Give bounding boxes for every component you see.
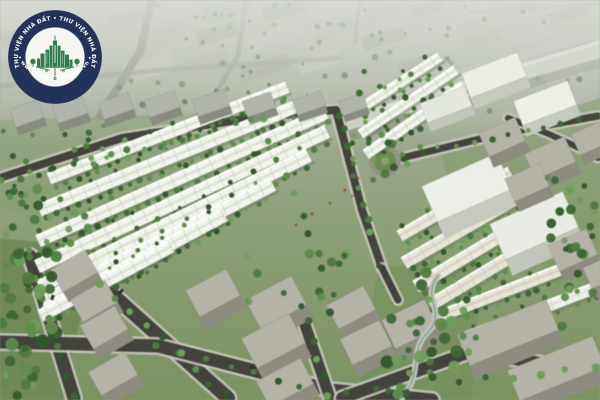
tree	[537, 371, 545, 379]
tree	[351, 161, 356, 166]
tree	[350, 156, 356, 162]
tree	[381, 355, 394, 368]
tree	[370, 177, 376, 183]
tree	[123, 146, 130, 153]
tree	[30, 132, 35, 137]
tree	[576, 117, 581, 122]
tree	[17, 176, 24, 183]
tree	[290, 190, 297, 197]
tree	[574, 289, 579, 294]
tree	[179, 137, 185, 143]
tree	[331, 292, 337, 298]
tree	[392, 354, 403, 365]
tree	[5, 356, 16, 367]
tree	[565, 285, 574, 294]
tree	[435, 144, 439, 148]
round-feature	[351, 195, 354, 198]
tree	[365, 216, 372, 223]
tree	[26, 254, 33, 261]
tree	[416, 279, 427, 290]
tree	[318, 265, 325, 272]
tree	[429, 373, 437, 381]
tree	[1, 129, 6, 134]
tree	[435, 318, 448, 331]
tree	[361, 69, 366, 74]
tree	[324, 392, 331, 399]
tree	[565, 186, 573, 194]
tree	[88, 155, 94, 161]
tree	[557, 322, 566, 331]
tree	[450, 345, 463, 358]
tree	[385, 388, 391, 394]
tree	[438, 306, 449, 317]
tree	[81, 213, 88, 220]
tree	[352, 133, 356, 137]
tree	[104, 155, 109, 160]
tree	[376, 263, 382, 269]
tree	[247, 298, 253, 304]
tree	[489, 136, 496, 143]
tree	[473, 335, 479, 341]
tree	[372, 246, 378, 252]
tree	[144, 322, 150, 328]
tree	[5, 292, 17, 304]
tree	[343, 389, 350, 396]
tree	[4, 262, 11, 269]
tree	[25, 322, 36, 333]
tree	[463, 296, 470, 303]
tree	[233, 120, 239, 126]
tree	[563, 246, 569, 252]
tree	[459, 333, 466, 340]
tree	[96, 280, 104, 288]
tree	[315, 250, 322, 257]
tree	[336, 260, 343, 267]
tree	[33, 200, 43, 210]
round-feature	[357, 177, 360, 180]
tree	[91, 161, 97, 167]
tree	[159, 333, 167, 341]
tree	[311, 338, 318, 345]
round-feature	[343, 188, 346, 191]
tree	[541, 126, 546, 131]
tree	[377, 84, 381, 88]
tree	[414, 350, 427, 363]
tree	[194, 134, 199, 139]
tree	[562, 237, 568, 243]
tree	[298, 303, 304, 309]
tree	[571, 242, 580, 251]
tree	[551, 176, 559, 184]
tree	[18, 361, 25, 368]
tree	[84, 223, 92, 231]
tree	[456, 379, 462, 385]
tree	[408, 71, 414, 77]
tree	[86, 130, 92, 136]
tree	[592, 363, 600, 372]
tree	[2, 380, 9, 387]
tree	[67, 239, 75, 247]
tree	[44, 239, 50, 245]
tree	[32, 184, 42, 194]
tree	[379, 132, 385, 138]
tree	[56, 353, 63, 360]
tree	[555, 207, 564, 216]
tree	[317, 293, 324, 300]
tree	[283, 172, 290, 179]
tree	[366, 229, 373, 236]
tree	[320, 372, 328, 380]
tree	[392, 389, 403, 400]
tree	[460, 307, 468, 315]
tree	[2, 372, 9, 379]
tree	[336, 112, 343, 119]
tree	[356, 185, 362, 191]
tree	[448, 361, 460, 373]
tree	[510, 375, 518, 383]
tree	[34, 292, 41, 299]
tree	[13, 391, 22, 400]
tree	[54, 332, 61, 339]
tree	[381, 169, 390, 178]
tree	[281, 290, 287, 296]
tree	[152, 342, 159, 349]
tree	[205, 381, 211, 387]
tree	[273, 157, 279, 163]
round-feature	[381, 157, 389, 165]
tree	[561, 293, 569, 301]
tree	[587, 223, 595, 231]
tree	[296, 384, 302, 390]
tree	[253, 269, 261, 277]
tree	[421, 150, 427, 156]
tree	[27, 169, 32, 174]
tree	[36, 173, 42, 179]
tree	[126, 308, 133, 315]
tree	[54, 343, 61, 350]
tree	[23, 305, 31, 313]
tree	[212, 126, 218, 132]
tree	[405, 347, 411, 353]
tree	[577, 197, 584, 204]
tree	[70, 209, 79, 218]
tree	[13, 249, 24, 260]
tree	[305, 317, 313, 325]
tree	[162, 141, 168, 147]
round-feature	[295, 224, 298, 227]
tree	[592, 210, 597, 215]
tree	[71, 147, 77, 153]
tree	[245, 254, 250, 259]
tree	[590, 201, 599, 210]
tree	[383, 85, 387, 89]
tree	[439, 333, 450, 344]
tree	[421, 267, 432, 278]
tree	[248, 116, 254, 122]
tree	[46, 213, 53, 220]
tree	[390, 163, 398, 171]
tree	[57, 196, 63, 202]
tree	[260, 115, 268, 123]
tree	[465, 348, 473, 356]
tree	[23, 158, 29, 164]
tree	[36, 334, 50, 348]
tree	[546, 233, 555, 242]
tree	[402, 94, 408, 100]
tree	[482, 374, 488, 380]
tree	[574, 270, 582, 278]
tree	[588, 288, 597, 297]
tree	[265, 138, 272, 145]
tree	[10, 153, 16, 159]
tree	[454, 297, 460, 303]
tree	[108, 151, 114, 157]
tree	[223, 390, 230, 397]
tree	[430, 338, 437, 345]
tree	[78, 230, 85, 237]
tree	[9, 223, 16, 230]
tree	[5, 338, 18, 351]
tree	[19, 194, 23, 198]
tree	[589, 233, 595, 239]
tree	[305, 249, 315, 259]
tree	[178, 349, 186, 357]
tree	[229, 364, 234, 369]
tree	[341, 253, 347, 259]
tree	[398, 87, 403, 92]
tree	[350, 140, 355, 145]
tree	[300, 213, 307, 220]
tree	[46, 271, 57, 282]
tree	[360, 202, 366, 208]
tree	[526, 128, 531, 133]
tree	[101, 124, 105, 128]
tree	[30, 215, 40, 225]
tree	[385, 139, 392, 146]
tree	[62, 132, 67, 137]
tree	[65, 226, 72, 233]
tree	[557, 121, 563, 127]
watermark-badge: THƯ VIỆN NHÀ ĐẤT • THƯ VIỆN NHÀ ĐẤT • ww…	[0, 2, 110, 112]
tree	[313, 356, 320, 363]
tree	[415, 316, 425, 326]
tree	[192, 366, 199, 373]
tree	[26, 247, 33, 254]
tree	[251, 369, 257, 375]
tree	[472, 140, 478, 146]
tree	[71, 161, 77, 167]
tree	[426, 358, 433, 365]
tree	[350, 173, 355, 178]
tree	[386, 314, 396, 324]
tree	[203, 355, 210, 362]
tree	[561, 366, 567, 372]
tree	[406, 320, 414, 328]
tree	[327, 257, 336, 266]
tree	[22, 272, 35, 285]
tree	[50, 165, 56, 171]
round-feature	[311, 213, 314, 216]
tree	[454, 144, 459, 149]
tree	[356, 90, 363, 97]
tree	[63, 373, 70, 380]
tree	[2, 231, 9, 238]
tree	[581, 183, 587, 189]
tree	[45, 284, 55, 294]
tree	[373, 386, 379, 392]
tree	[413, 329, 420, 336]
tree	[397, 77, 401, 81]
tree	[142, 147, 147, 152]
tree	[427, 347, 437, 357]
round-feature	[329, 202, 332, 205]
tree	[545, 175, 550, 180]
tree	[404, 161, 411, 168]
tree	[445, 316, 458, 329]
tree	[10, 188, 17, 195]
tree	[21, 380, 31, 390]
tree	[341, 125, 348, 132]
tree	[566, 205, 576, 215]
tree	[546, 219, 556, 229]
tree	[326, 308, 334, 316]
tree	[406, 369, 413, 376]
tree	[275, 378, 282, 385]
tree	[71, 393, 78, 400]
tree	[112, 295, 119, 302]
tree	[506, 132, 511, 137]
tree	[86, 137, 91, 142]
tree	[417, 144, 423, 150]
tree	[12, 313, 19, 320]
tree	[304, 230, 311, 237]
tree	[426, 296, 433, 303]
aerial-masterplan-image: THƯ VIỆN NHÀ ĐẤT • THƯ VIỆN NHÀ ĐẤT • ww…	[0, 0, 600, 400]
tree	[12, 184, 16, 188]
tree	[6, 312, 13, 319]
tree	[21, 345, 29, 353]
tree	[24, 204, 29, 209]
tree	[42, 247, 53, 258]
tree	[83, 145, 87, 149]
tree	[592, 113, 598, 119]
